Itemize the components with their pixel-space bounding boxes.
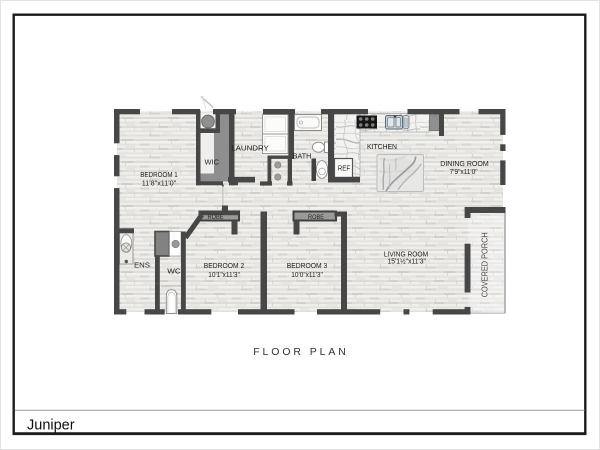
svg-text:15'1½"x11'3": 15'1½"x11'3" (387, 257, 426, 265)
svg-text:BEDROOM 3: BEDROOM 3 (287, 261, 328, 270)
svg-text:BEDROOM 1: BEDROOM 1 (140, 170, 178, 179)
svg-text:BATH: BATH (293, 151, 312, 160)
svg-text:10'0"x11'3": 10'0"x11'3" (291, 272, 323, 279)
svg-text:7'9"x11'0": 7'9"x11'0" (450, 169, 478, 176)
svg-text:FLOOR PLAN: FLOOR PLAN (253, 346, 349, 358)
svg-text:REF: REF (338, 165, 351, 172)
svg-text:10'1"x11'3": 10'1"x11'3" (208, 272, 240, 279)
svg-text:DINING ROOM: DINING ROOM (440, 159, 489, 168)
svg-text:ROBE: ROBE (308, 214, 324, 221)
svg-text:11'8"x11'0": 11'8"x11'0" (142, 181, 177, 188)
svg-text:LAUNDRY: LAUNDRY (231, 144, 269, 153)
svg-text:ENS: ENS (134, 260, 150, 269)
svg-text:WIC: WIC (205, 157, 220, 166)
svg-text:KITCHEN: KITCHEN (367, 142, 397, 151)
svg-text:Juniper: Juniper (27, 418, 75, 434)
svg-text:ROBE: ROBE (208, 214, 224, 221)
svg-text:BEDROOM 2: BEDROOM 2 (204, 261, 245, 270)
svg-text:COVERED PORCH: COVERED PORCH (480, 232, 489, 297)
svg-text:WC: WC (167, 267, 181, 276)
svg-text:LIVING ROOM: LIVING ROOM (384, 249, 428, 258)
